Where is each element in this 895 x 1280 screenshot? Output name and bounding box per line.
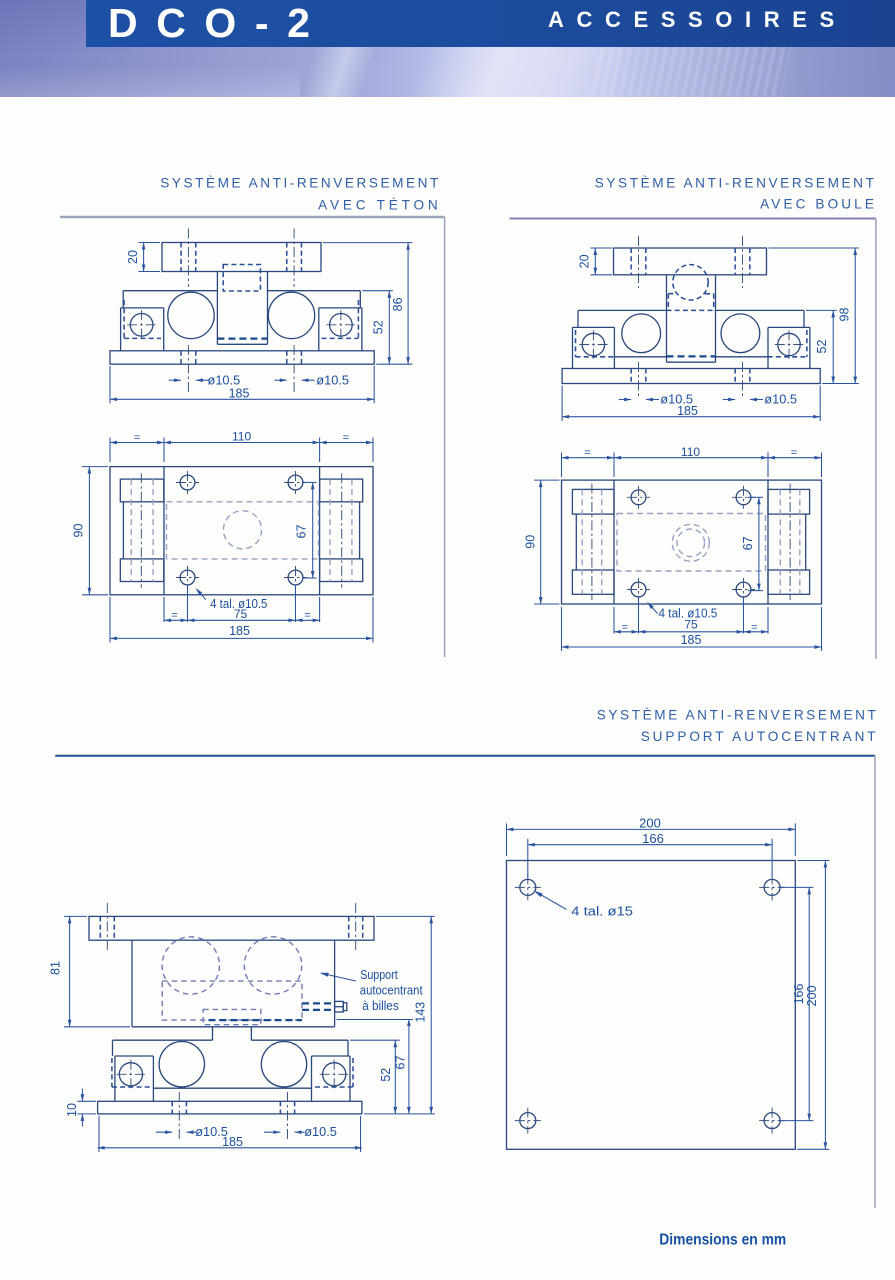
svg-text:SYSTÈME ANTI-RENVERSEMENT: SYSTÈME ANTI-RENVERSEMENT — [597, 708, 879, 723]
svg-text:52: 52 — [379, 1068, 393, 1082]
svg-text:52: 52 — [371, 320, 385, 334]
svg-text:SYSTÈME ANTI-RENVERSEMENT: SYSTÈME ANTI-RENVERSEMENT — [160, 176, 441, 191]
svg-text:185: 185 — [229, 624, 250, 638]
svg-text:SUPPORT AUTOCENTRANT: SUPPORT AUTOCENTRANT — [641, 729, 879, 744]
svg-text:SYSTÈME ANTI-RENVERSEMENT: SYSTÈME ANTI-RENVERSEMENT — [595, 176, 877, 191]
svg-text:143: 143 — [413, 1002, 427, 1023]
svg-text:52: 52 — [815, 340, 829, 354]
svg-text:110: 110 — [232, 430, 251, 444]
svg-text:185: 185 — [222, 1135, 243, 1149]
svg-text:ø10.5: ø10.5 — [208, 372, 241, 387]
svg-text:autocentrant: autocentrant — [360, 983, 423, 998]
svg-text:ø10.5: ø10.5 — [304, 1124, 337, 1139]
svg-text:AVEC TÉTON: AVEC TÉTON — [318, 198, 441, 213]
svg-text:200: 200 — [805, 985, 819, 1006]
svg-text:90: 90 — [523, 535, 537, 549]
svg-text:20: 20 — [577, 254, 591, 268]
svg-text:200: 200 — [639, 816, 661, 831]
svg-text:10: 10 — [65, 1103, 79, 1117]
svg-text:Support: Support — [360, 967, 398, 982]
svg-text:67: 67 — [741, 536, 755, 550]
svg-text:90: 90 — [72, 524, 86, 538]
svg-text:86: 86 — [391, 297, 405, 311]
svg-text:=: = — [751, 621, 757, 633]
svg-text:75: 75 — [684, 618, 698, 632]
svg-text:=: = — [584, 447, 590, 459]
svg-text:4 tal. ø15: 4 tal. ø15 — [571, 904, 633, 919]
svg-text:185: 185 — [681, 633, 702, 647]
svg-text:=: = — [171, 610, 177, 622]
svg-text:75: 75 — [234, 607, 248, 621]
svg-text:166: 166 — [792, 984, 806, 1005]
svg-text:20: 20 — [126, 250, 140, 264]
svg-text:166: 166 — [642, 831, 664, 846]
svg-text:98: 98 — [838, 308, 852, 322]
svg-text:81: 81 — [49, 961, 63, 975]
svg-text:185: 185 — [229, 387, 250, 401]
svg-text:=: = — [343, 432, 349, 444]
svg-text:185: 185 — [677, 404, 698, 418]
svg-text:=: = — [791, 447, 797, 459]
svg-text:ø10.5: ø10.5 — [316, 372, 349, 387]
svg-text:Dimensions en mm: Dimensions en mm — [659, 1232, 786, 1249]
svg-text:=: = — [622, 621, 628, 633]
svg-text:67: 67 — [294, 525, 308, 539]
svg-text:à billes: à billes — [362, 998, 399, 1013]
svg-text:AVEC BOULE: AVEC BOULE — [760, 197, 877, 212]
svg-text:=: = — [134, 432, 140, 444]
svg-text:=: = — [304, 610, 310, 622]
svg-text:ø10.5: ø10.5 — [764, 392, 797, 407]
svg-text:110: 110 — [681, 445, 700, 459]
